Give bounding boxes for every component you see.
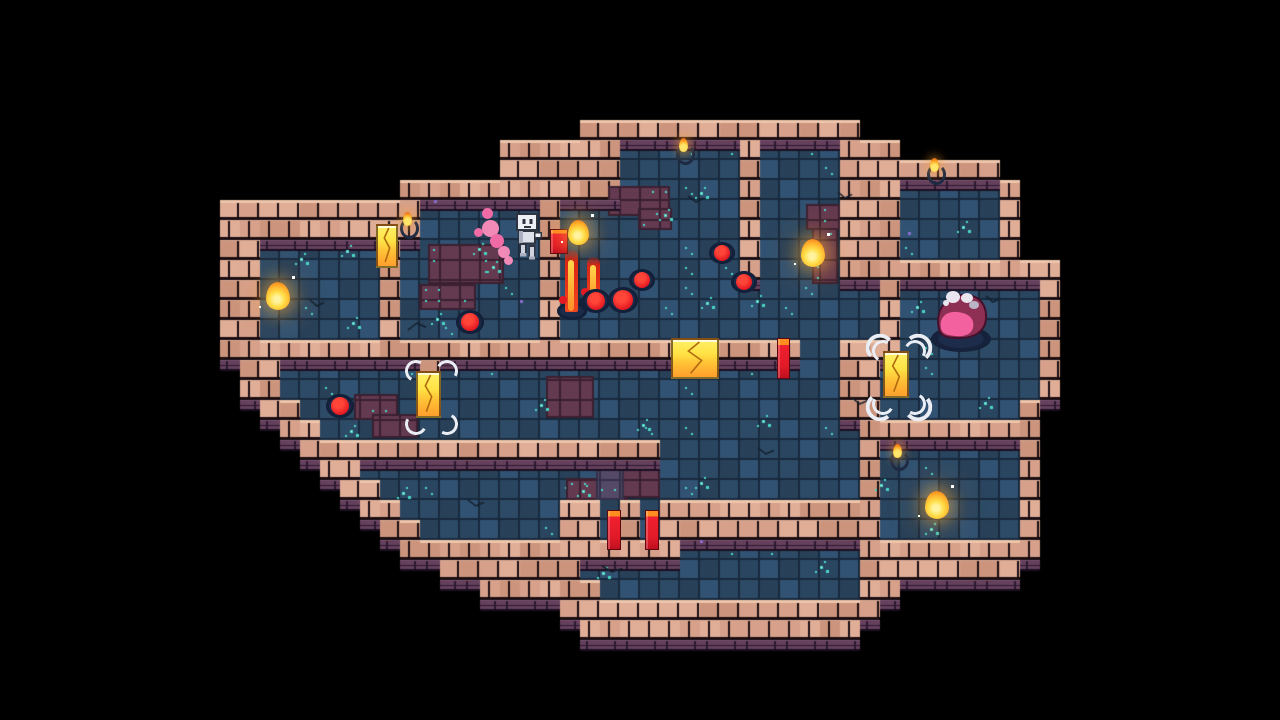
- trail-puff: [482, 208, 493, 219]
- red-blob-enemy[interactable]: [613, 290, 633, 310]
- entities-layer: [0, 0, 1280, 720]
- torch-flame-icon: [679, 138, 688, 152]
- flame-orb-icon: [266, 282, 290, 310]
- red-blob-enemy[interactable]: [461, 313, 479, 331]
- trail-puff: [474, 228, 483, 237]
- torch-flame-icon: [930, 158, 939, 172]
- fire-jet-hazard: [565, 250, 578, 312]
- wall-torch-icon: [889, 442, 905, 466]
- flame-orb-icon: [568, 220, 589, 245]
- red-blob-enemy[interactable]: [634, 272, 650, 288]
- wall-torch-icon: [675, 136, 691, 160]
- target-bracket: [903, 392, 934, 423]
- red-blob-enemy[interactable]: [587, 292, 605, 310]
- yellow-breakable-block[interactable]: [376, 224, 398, 268]
- red-door[interactable]: [550, 229, 568, 254]
- robot-hero[interactable]: [510, 212, 544, 264]
- pink-slime-boss[interactable]: [928, 284, 994, 354]
- torch-flame-icon: [403, 212, 412, 226]
- game-stage: [0, 0, 1280, 720]
- flame-orb-icon: [925, 491, 949, 519]
- target-bracket: [864, 392, 895, 423]
- wall-torch-icon: [926, 156, 942, 180]
- flame-orb-icon: [801, 239, 825, 267]
- red-door[interactable]: [645, 510, 659, 550]
- yellow-breakable-block[interactable]: [671, 338, 719, 379]
- red-door[interactable]: [607, 510, 621, 550]
- red-door[interactable]: [777, 338, 790, 379]
- red-blob-enemy[interactable]: [714, 245, 730, 261]
- torch-flame-icon: [893, 444, 902, 458]
- red-blob-enemy[interactable]: [331, 397, 349, 415]
- wall-torch-icon: [399, 210, 415, 234]
- red-blob-enemy[interactable]: [736, 274, 752, 290]
- fire-jet-splash: [559, 296, 567, 304]
